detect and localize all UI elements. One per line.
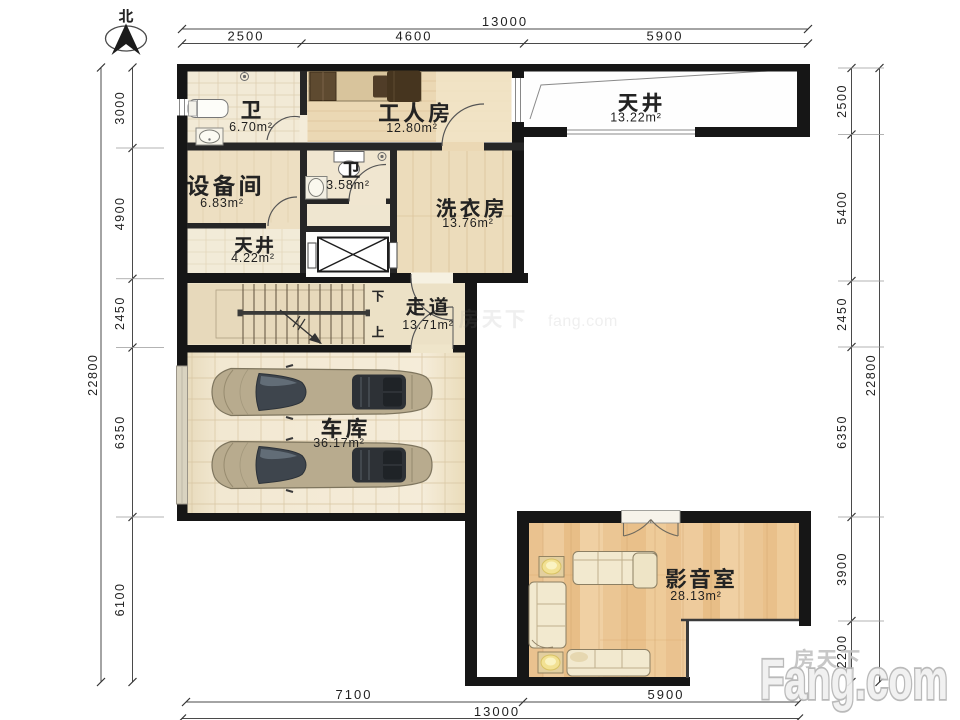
- svg-text:5900: 5900: [648, 687, 685, 702]
- svg-text:fang.com: fang.com: [548, 313, 618, 330]
- svg-text:12.80m²: 12.80m²: [386, 121, 437, 135]
- svg-text:4.22m²: 4.22m²: [231, 251, 275, 265]
- svg-text:28.13m²: 28.13m²: [670, 589, 721, 603]
- svg-text:7100: 7100: [336, 687, 373, 702]
- svg-text:13.71m²: 13.71m²: [402, 318, 453, 332]
- svg-text:3.58m²: 3.58m²: [326, 178, 370, 192]
- svg-text:2450: 2450: [835, 297, 849, 331]
- svg-text:13000: 13000: [482, 14, 528, 29]
- svg-text:6350: 6350: [835, 415, 849, 449]
- svg-text:5900: 5900: [647, 29, 684, 44]
- svg-text:13000: 13000: [474, 704, 520, 719]
- svg-text:22800: 22800: [86, 354, 100, 396]
- svg-text:2500: 2500: [835, 84, 849, 118]
- svg-text:22800: 22800: [864, 354, 878, 396]
- svg-text:3000: 3000: [113, 91, 127, 125]
- svg-text:2450: 2450: [113, 296, 127, 330]
- svg-text:6100: 6100: [113, 583, 127, 617]
- svg-text:2500: 2500: [228, 29, 265, 44]
- svg-text:5400: 5400: [835, 191, 849, 225]
- svg-text:36.17m²: 36.17m²: [313, 436, 364, 450]
- svg-text:4600: 4600: [396, 29, 433, 44]
- svg-text:6.83m²: 6.83m²: [200, 196, 244, 210]
- svg-text:6.70m²: 6.70m²: [229, 120, 273, 134]
- svg-text:Fang.com: Fang.com: [760, 648, 948, 712]
- svg-text:6350: 6350: [113, 415, 127, 449]
- svg-text:4900: 4900: [113, 196, 127, 230]
- svg-text:3900: 3900: [835, 552, 849, 586]
- svg-text:13.76m²: 13.76m²: [442, 216, 493, 230]
- svg-text:13.22m²: 13.22m²: [610, 111, 661, 125]
